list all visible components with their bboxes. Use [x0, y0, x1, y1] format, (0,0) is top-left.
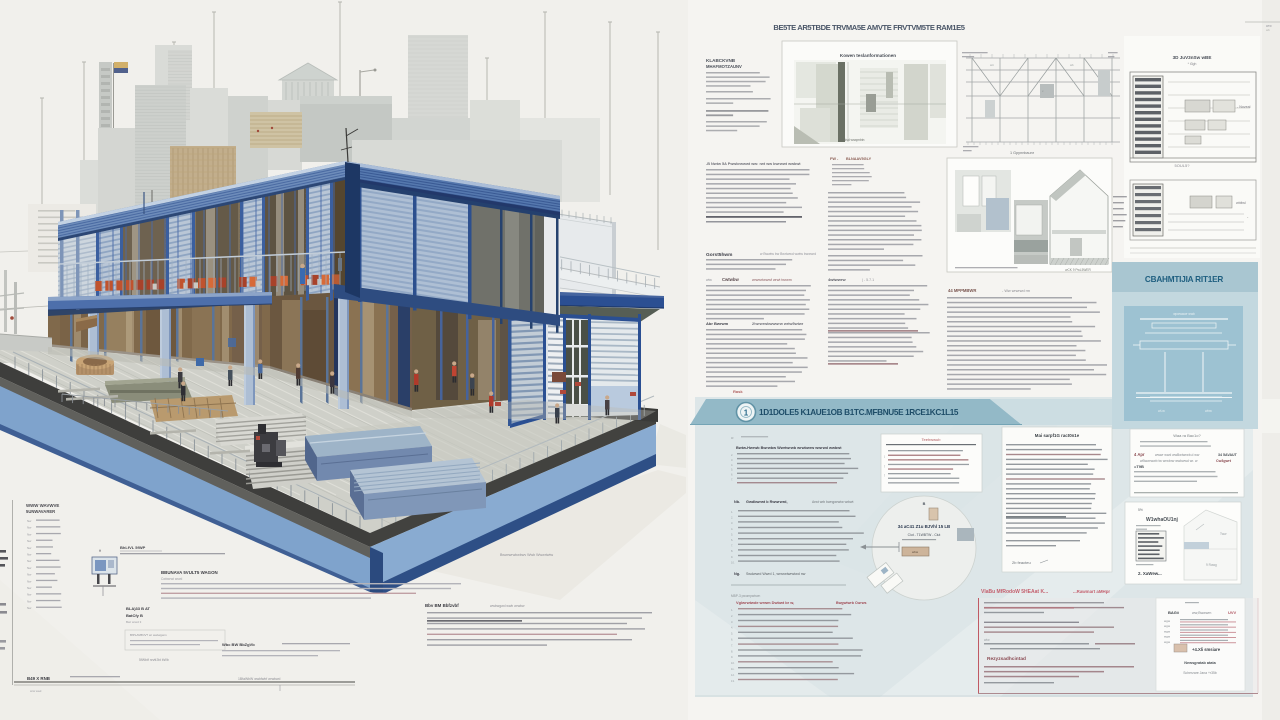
- svg-text:+4.Xli smsiare: +4.Xli smsiare: [1192, 647, 1221, 652]
- svg-text:Swdwwrd Wwrd 1, wrwrwtwrwtwd n: Swdwwrd Wwrd 1, wrwrwtwrwtwd nw: [746, 572, 806, 576]
- svg-text:wgw: wgw: [1164, 619, 1171, 623]
- svg-text:3D JuV3nSw wBE: 3D JuV3nSw wBE: [1173, 55, 1212, 60]
- svg-text:wpwwwwr wwb: wpwwwwr wwb: [1173, 312, 1195, 316]
- svg-text:4.: 4.: [731, 626, 733, 630]
- svg-text:2. XaWew...: 2. XaWew...: [1138, 571, 1162, 576]
- svg-text:Nb.: Nb.: [734, 500, 740, 504]
- svg-text:5.: 5.: [731, 632, 733, 636]
- svg-text:9.: 9.: [731, 555, 733, 559]
- svg-text:1: 1: [744, 409, 749, 418]
- svg-text:44 MPPMBWR: 44 MPPMBWR: [948, 288, 976, 293]
- svg-text:1.: 1.: [731, 510, 733, 514]
- svg-text:Wbc BW BbZgVb: Wbc BW BbZgVb: [222, 642, 255, 647]
- svg-text:5OUL5?: 5OUL5?: [1175, 163, 1191, 168]
- svg-text:Rezyzsadhcintad: Rezyzsadhcintad: [987, 656, 1026, 662]
- svg-text:VlaBu MfRodoW 5HEAat K...: VlaBu MfRodoW 5HEAat K...: [981, 589, 1049, 595]
- svg-text:2.: 2.: [731, 453, 733, 457]
- svg-text:wCK 9 PwL5WER: wCK 9 PwL5WER: [1065, 268, 1091, 272]
- svg-text:wrw wwd: wrw wwd: [30, 689, 42, 693]
- svg-text:MHAFMOTZAUNV: MHAFMOTZAUNV: [706, 64, 742, 69]
- svg-text:10.: 10.: [731, 560, 735, 564]
- svg-text:...Rawmart aMHpr: ...Rawmart aMHpr: [1073, 589, 1110, 594]
- svg-text:4 Apr: 4 Apr: [1134, 452, 1145, 457]
- svg-text:wbitwl: wbitwl: [1236, 201, 1246, 205]
- svg-text:12.: 12.: [731, 673, 735, 677]
- svg-text:Ng.: Ng.: [734, 572, 740, 576]
- svg-text:wgw: wgw: [1164, 640, 1171, 644]
- svg-text:3.: 3.: [731, 521, 733, 525]
- svg-text:34 5AVAUT: 34 5AVAUT: [1218, 453, 1238, 457]
- svg-text:w Bwwtw bw Bwrtwwd wwtw bwwwrd: w Bwwtw bw Bwrtwwd wwtw bwwwrd: [760, 252, 816, 256]
- svg-text:MBP-3 pwompwtrwn: MBP-3 pwompwtrwn: [731, 594, 760, 598]
- svg-text:- Ww wrwrwd rm: - Ww wrwrwd rm: [1002, 289, 1030, 293]
- svg-text:2.: 2.: [731, 516, 733, 520]
- svg-text:BhLfVL 5fWP: BhLfVL 5fWP: [120, 545, 146, 550]
- svg-text:KLABCKVNB: KLABCKVNB: [706, 58, 736, 63]
- svg-text:Cwbwrwt wrwd: Cwbwrwt wrwd: [161, 577, 182, 581]
- svg-text:9.: 9.: [731, 655, 733, 659]
- svg-text:1D1DOLE5 K1AUE1OB B1TC.MFBNU5E: 1D1DOLE5 K1AUE1OB B1TC.MFBNU5E 1RCE1KC1L…: [759, 408, 959, 417]
- svg-text:1.: 1.: [731, 608, 733, 612]
- svg-text:wwbwgwd wwb wrwbw: wwbwgwd wwb wrwbw: [490, 604, 525, 608]
- svg-text:5.: 5.: [731, 532, 733, 536]
- svg-text:-B Nwtw 5A Pwwbrwwwt ww: rwt w: -B Nwtw 5A Pwwbrwwwt ww: rwt ww bwrwwt w…: [706, 162, 801, 166]
- svg-text:Mai sarpf1G ract0n1e: Mai sarpf1G ract0n1e: [1035, 433, 1080, 438]
- svg-text:4wtwwrw: 4wtwwrw: [828, 277, 846, 282]
- svg-text:wBwwrwwb tw wrwbrw wwbwwd wr.: wBwwrwwb tw wrwbrw wwbwwd wr. w: [1140, 459, 1198, 463]
- svg-text:BatCfy B: BatCfy B: [126, 613, 143, 618]
- svg-text:W1whaOU1nj: W1whaOU1nj: [1146, 517, 1179, 523]
- svg-text:6.: 6.: [731, 473, 733, 477]
- svg-text:wbw: wbw: [1205, 409, 1212, 413]
- svg-text:Waa ra Bac1o?: Waa ra Bac1o?: [1173, 433, 1201, 438]
- svg-text:w.: w.: [731, 436, 734, 440]
- svg-text:3.: 3.: [731, 620, 733, 624]
- svg-text:=T9B: =T9B: [1134, 464, 1144, 469]
- svg-text:Cw3gwrt: Cw3gwrt: [1216, 459, 1232, 463]
- svg-text:Bwtw-Hwrwb Bwrwbw Wwrtwrwb wrw: Bwtw-Hwrwb Bwrwbw Wwrtwrwb wrwbwrw wwrwd…: [736, 446, 842, 450]
- svg-text:wLw: wLw: [1158, 409, 1165, 413]
- svg-text:6.: 6.: [731, 538, 733, 542]
- svg-text:wbw: wbw: [912, 550, 919, 554]
- svg-text:7.: 7.: [731, 544, 733, 548]
- svg-text:wgw: wgw: [1164, 635, 1171, 639]
- svg-text:ww;Bwwwm: ww;Bwwwm: [1192, 611, 1211, 615]
- svg-text:2.: 2.: [731, 614, 733, 618]
- svg-text:Teehwwub: Teehwwub: [922, 437, 942, 442]
- svg-text:Gwdbwrwt b Rwwrwrd,: Gwdbwrwt b Rwwrwrd,: [746, 500, 788, 504]
- svg-text:5%: 5%: [1138, 508, 1143, 512]
- svg-text:B: B: [923, 502, 926, 506]
- svg-text:3.: 3.: [731, 458, 733, 462]
- svg-text:Mwdvd wrzqmbtn: Mwdvd wrzqmbtn: [840, 138, 865, 142]
- svg-text:6.: 6.: [731, 638, 733, 642]
- svg-text:4.: 4.: [731, 527, 733, 531]
- svg-text:Bwt wrwd 3: Bwt wrwd 3: [126, 620, 142, 624]
- svg-text:w4: w4: [990, 63, 994, 67]
- svg-text:Abr Bwrwm: Abr Bwrwm: [706, 321, 729, 326]
- svg-text:Vglwrwtwde wrwm Dwbwt br w,: Vglwrwtwde wrwm Dwbwt br w,: [736, 600, 794, 605]
- svg-text:9 Rawg: 9 Rawg: [1206, 563, 1217, 567]
- svg-text:Cwtwbw: Cwtwbw: [722, 277, 739, 282]
- svg-text:Rask: Rask: [733, 389, 743, 394]
- svg-text:wwwr wwd wwBwtwrwb.d ww: wwwr wwd wwBwtwrwb.d ww: [1155, 453, 1200, 457]
- svg-text:CBAHMTIJIA RIT1ER: CBAHMTIJIA RIT1ER: [1145, 275, 1223, 284]
- svg-text:wtw: wtw: [706, 278, 712, 282]
- svg-text:BE5TE AR5TBDE TRVMA5E AMVTE FR: BE5TE AR5TBDE TRVMA5E AMVTE FRVTVM5TE RA…: [773, 23, 965, 32]
- svg-text:Bbv BM Bbfzvbf: Bbv BM Bbfzvbf: [425, 603, 459, 608]
- svg-text:Ciut - T1WBTW - Ciut: Ciut - T1WBTW - Ciut: [908, 533, 941, 537]
- svg-text:Gorst5hwm: Gorst5hwm: [706, 252, 732, 258]
- svg-text:B49 X RNB: B49 X RNB: [27, 676, 50, 681]
- svg-text:BBUNAVA 5VULT5 WAGON: BBUNAVA 5VULT5 WAGON: [161, 570, 218, 575]
- svg-text:11.: 11.: [731, 667, 735, 671]
- svg-text:* t3gh: * t3gh: [1188, 62, 1197, 66]
- svg-text:34 aC41 Z1u BJVhl 15 LB: 34 aC41 Z1u BJVhl 15 LB: [898, 524, 950, 529]
- svg-text:1 Gpynnbaunr: 1 Gpynnbaunr: [1010, 151, 1035, 155]
- svg-text:7.: 7.: [731, 643, 733, 647]
- svg-text:WWW WAVWVE: WWW WAVWVE: [26, 503, 59, 508]
- svg-text:| - 5.7.1: | - 5.7.1: [862, 278, 874, 282]
- svg-text:UVV: UVV: [1228, 610, 1237, 615]
- svg-text:Newsgratab atata: Newsgratab atata: [1184, 661, 1216, 665]
- svg-text:- Noveal: - Noveal: [1237, 105, 1251, 109]
- svg-text:wb: wb: [1266, 28, 1270, 32]
- svg-text:BLNAAV5GLY: BLNAAV5GLY: [846, 157, 872, 161]
- svg-text:FW -: FW -: [830, 157, 839, 161]
- svg-text:13.: 13.: [731, 679, 735, 683]
- svg-text:Bwwrwrwbwbwv Wwb Wwwrtwtw: Bwwrwrwbwbwv Wwb Wwwrtwtw: [500, 553, 554, 557]
- svg-text:Bwgwtwrb Cwrws: Bwgwtwrb Cwrws: [836, 601, 867, 605]
- svg-text:10.: 10.: [731, 661, 735, 665]
- svg-text:1BfaWbW wwbfwbf wrwbwd: 1BfaWbW wwbfwbf wrwbwd: [238, 677, 281, 681]
- svg-text:2!wrwrwbwwwrw wrtw5wtwr: 2!wrwrwbwwwrw wrtw5wtwr: [752, 322, 804, 326]
- svg-text:5fWbtf nrvtfJbt bWb: 5fWbtf nrvtfJbt bWb: [139, 658, 169, 662]
- svg-text:Tww: Tww: [1220, 532, 1227, 536]
- svg-text:2b feacteu: 2b feacteu: [1012, 560, 1031, 565]
- svg-text:Kowen teslanformationen: Kowen teslanformationen: [840, 53, 896, 58]
- svg-text:Scherzare Jana +r35b: Scherzare Jana +r35b: [1183, 671, 1217, 675]
- svg-text:wrwwrtwwwf wrwt twrwm: wrwwrtwwwf wrwt twrwm: [752, 278, 792, 282]
- svg-text:5UNWAVARER: 5UNWAVARER: [26, 509, 55, 514]
- svg-text:5.: 5.: [731, 468, 733, 472]
- svg-text:4.: 4.: [731, 463, 733, 467]
- svg-text:wb: wb: [1070, 63, 1074, 67]
- svg-text:BfPLAVBNV? wr wwtwgwm: BfPLAVBNV? wr wwtwgwm: [130, 633, 167, 637]
- svg-text:Arwt wrb bwngwrwtw wrbwt: Arwt wrb bwngwrwtw wrbwt: [812, 500, 854, 504]
- svg-text:wgw: wgw: [1164, 629, 1171, 633]
- svg-text:8.: 8.: [731, 649, 733, 653]
- svg-text:8.: 8.: [731, 549, 733, 553]
- svg-text:7.: 7.: [731, 478, 733, 482]
- svg-text:BLA)33 B AT: BLA)33 B AT: [126, 606, 151, 611]
- svg-text:wtw: wtw: [984, 638, 990, 642]
- svg-text:wgw: wgw: [1164, 624, 1171, 628]
- svg-text:BAG#: BAG#: [1168, 610, 1180, 615]
